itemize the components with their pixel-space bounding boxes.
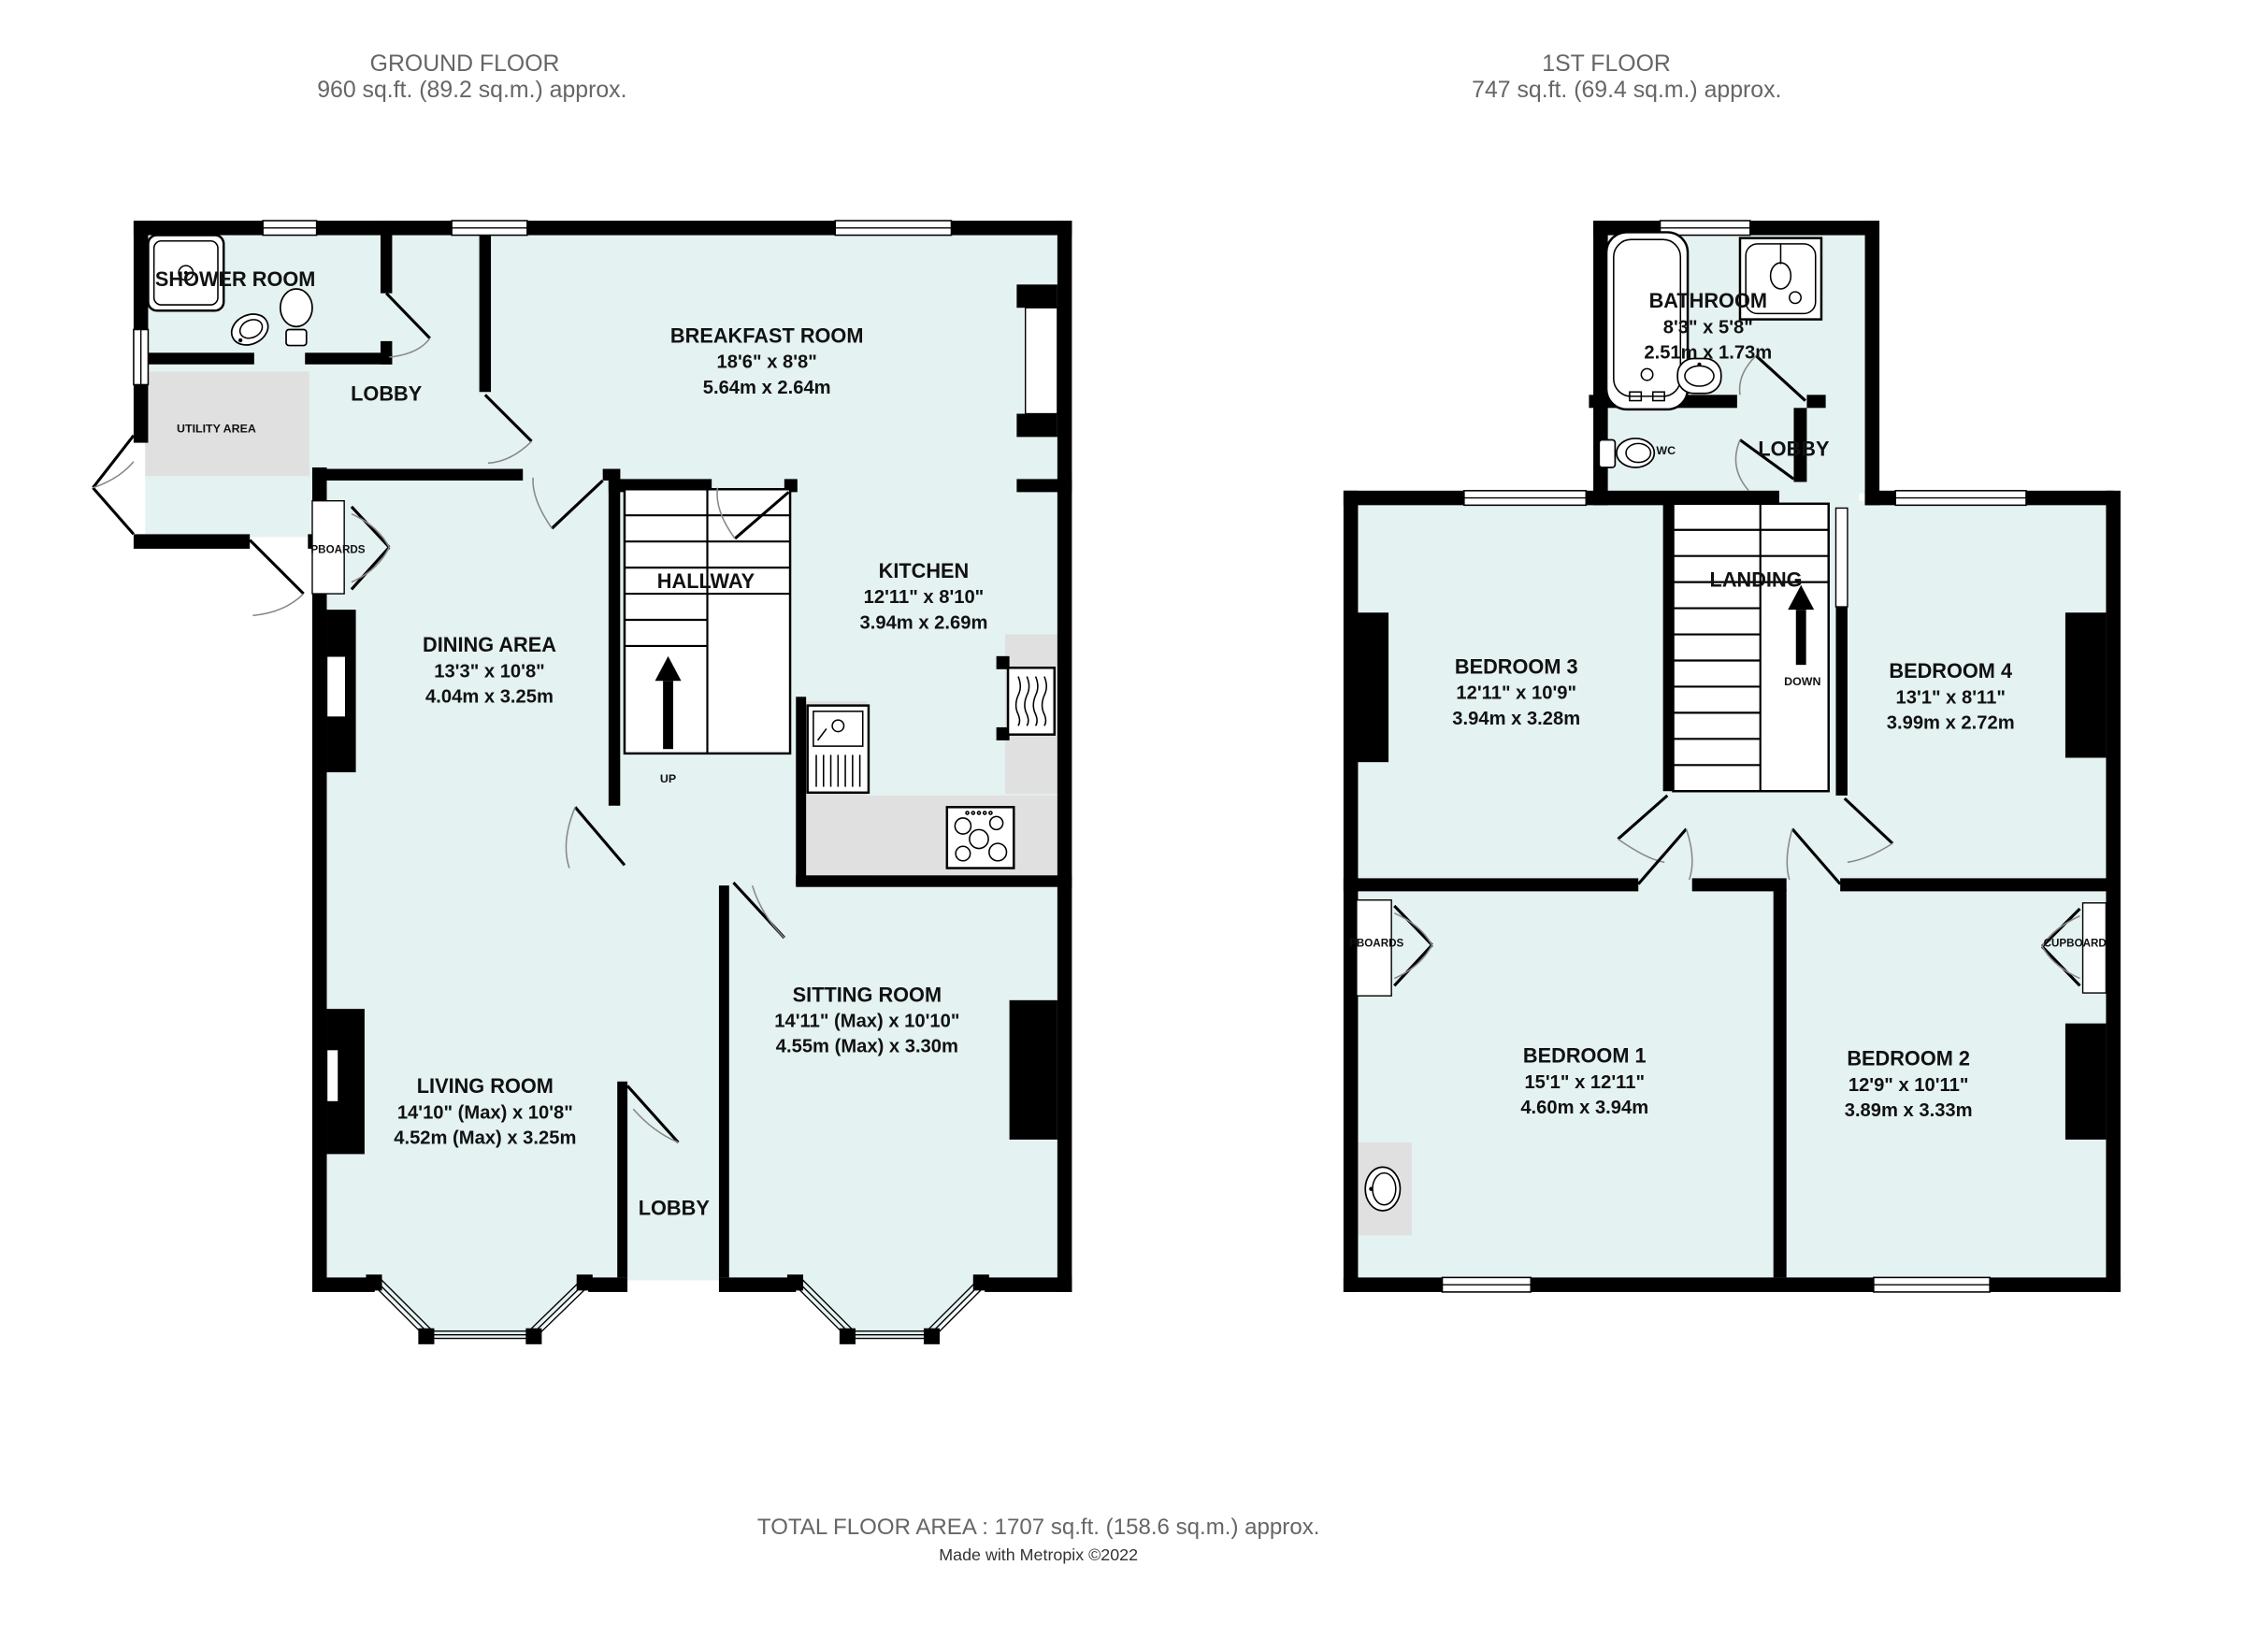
svg-text:12'9" x 10'11": 12'9" x 10'11" <box>1848 1075 1969 1096</box>
svg-text:4.55m (Max) x 3.30m: 4.55m (Max) x 3.30m <box>776 1037 958 1057</box>
svg-text:BEDROOM 2: BEDROOM 2 <box>1847 1047 1970 1070</box>
door <box>250 540 303 594</box>
svg-text:4.52m (Max) x 3.25m: 4.52m (Max) x 3.25m <box>394 1128 576 1149</box>
utility-area-label: UTILITY AREA <box>177 423 256 436</box>
ground-floor-area: 960 sq.ft. (89.2 sq.m.) approx. <box>317 78 626 103</box>
svg-text:3.94m x 3.28m: 3.94m x 3.28m <box>1452 709 1580 729</box>
cupboards-label: PBOARDS <box>310 544 365 556</box>
svg-text:12'11" x 8'10": 12'11" x 8'10" <box>864 587 985 608</box>
landing-label: LANDING <box>1710 567 1803 591</box>
svg-text:4.60m x 3.94m: 4.60m x 3.94m <box>1520 1098 1648 1118</box>
bedroom2-label: BEDROOM 2 12'9" x 10'11" 3.89m x 3.33m <box>1845 1047 1973 1121</box>
stairwell-screen <box>1835 508 1847 607</box>
toilet <box>1599 438 1654 467</box>
door <box>93 488 133 535</box>
wc-label: WC <box>1656 444 1676 457</box>
sitting-chimney-breast <box>1010 1000 1057 1140</box>
svg-text:3.94m x 2.69m: 3.94m x 2.69m <box>860 612 988 633</box>
bedroom2-chimney-breast <box>2065 1024 2106 1140</box>
svg-text:BEDROOM 1: BEDROOM 1 <box>1523 1044 1647 1068</box>
door <box>93 436 133 488</box>
svg-text:12'11" x 10'9": 12'11" x 10'9" <box>1456 683 1576 704</box>
living-room-bay-floor <box>375 1281 588 1339</box>
hallway-label: HALLWAY <box>657 569 755 593</box>
svg-text:2.51m x 1.73m: 2.51m x 1.73m <box>1644 343 1772 364</box>
bedroom3-label: BEDROOM 3 12'11" x 10'9" 3.94m x 3.28m <box>1452 654 1580 728</box>
ground-floor-staircase <box>625 489 790 754</box>
bedroom3-chimney-breast <box>1357 612 1388 762</box>
svg-text:KITCHEN: KITCHEN <box>879 559 970 582</box>
svg-text:BREAKFAST ROOM: BREAKFAST ROOM <box>670 323 864 347</box>
kitchen-sink <box>808 706 869 793</box>
first-floor-staircase <box>1674 504 1829 791</box>
svg-text:DINING AREA: DINING AREA <box>423 633 556 656</box>
lobby-top-label: LOBBY <box>351 382 423 406</box>
lobby-bottom-label: LOBBY <box>639 1197 711 1220</box>
svg-text:13'1" x 8'11": 13'1" x 8'11" <box>1896 687 2006 708</box>
first-floor-area: 747 sq.ft. (69.4 sq.m.) approx. <box>1472 78 1781 103</box>
bedroom4-label: BEDROOM 4 13'1" x 8'11" 3.99m x 2.72m <box>1887 659 2015 733</box>
svg-text:BATHROOM: BATHROOM <box>1649 289 1767 312</box>
ground-floor-plan: SHOWER ROOM LOBBY UTILITY AREA PBOARDS B… <box>93 221 1072 1344</box>
bathroom-label: BATHROOM 8'3" x 5'8" 2.51m x 1.73m <box>1644 289 1772 363</box>
bedroom1-label: BEDROOM 1 15'1" x 12'11" 4.60m x 3.94m <box>1520 1044 1648 1118</box>
metropix-credit: Made with Metropix ©2022 <box>939 1545 1138 1564</box>
svg-text:15'1" x 12'11": 15'1" x 12'11" <box>1524 1072 1645 1093</box>
svg-text:BEDROOM 3: BEDROOM 3 <box>1455 654 1578 678</box>
svg-text:5.64m x 2.64m: 5.64m x 2.64m <box>703 378 831 398</box>
total-floor-area: TOTAL FLOOR AREA : 1707 sq.ft. (158.6 sq… <box>757 1515 1320 1540</box>
svg-text:8'3" x 5'8": 8'3" x 5'8" <box>1663 317 1753 338</box>
cupboard-right-label: CUPBOARD <box>2044 937 2107 949</box>
sitting-room-bay-floor <box>796 1281 985 1339</box>
svg-text:4.04m x 3.25m: 4.04m x 3.25m <box>425 687 554 708</box>
floorplan-canvas: GROUND FLOOR 960 sq.ft. (89.2 sq.m.) app… <box>0 0 2244 1652</box>
svg-text:BEDROOM 4: BEDROOM 4 <box>1889 659 2012 682</box>
first-floor-lobby-label: LOBBY <box>1758 438 1830 461</box>
svg-text:3.89m x 3.33m: 3.89m x 3.33m <box>1845 1100 1973 1121</box>
floorplan-page: GROUND FLOOR 960 sq.ft. (89.2 sq.m.) app… <box>0 0 2244 1652</box>
up-label: UP <box>660 772 676 785</box>
bedroom4-chimney-breast <box>2065 612 2106 757</box>
kitchen-label: KITCHEN 12'11" x 8'10" 3.94m x 2.69m <box>860 559 988 633</box>
living-room-label: LIVING ROOM 14'10" (Max) x 10'8" 4.52m (… <box>394 1074 576 1148</box>
shower-room-label: SHOWER ROOM <box>155 267 316 291</box>
first-floor-plan: BATHROOM 8'3" x 5'8" 2.51m x 1.73m WC LO… <box>1344 221 2121 1292</box>
sink <box>1365 1167 1400 1211</box>
breakfast-wall-recess <box>1026 308 1057 413</box>
hob <box>947 807 1014 868</box>
dining-area-label: DINING AREA 13'3" x 10'8" 4.04m x 3.25m <box>423 633 556 707</box>
down-label: DOWN <box>1784 675 1820 688</box>
cupboards-left-label: PBOARDS <box>1349 937 1403 949</box>
svg-text:SITTING ROOM: SITTING ROOM <box>793 983 942 1006</box>
svg-text:3.99m x 2.72m: 3.99m x 2.72m <box>1887 712 2015 733</box>
svg-text:18'6" x 8'8": 18'6" x 8'8" <box>717 352 817 373</box>
ground-floor-title: GROUND FLOOR <box>370 51 560 77</box>
svg-text:13'3" x 10'8": 13'3" x 10'8" <box>434 661 544 682</box>
svg-text:14'10" (Max) x 10'8": 14'10" (Max) x 10'8" <box>397 1102 573 1123</box>
sitting-room-label: SITTING ROOM 14'11" (Max) x 10'10" 4.55m… <box>774 983 959 1056</box>
first-floor-title: 1ST FLOOR <box>1542 51 1671 77</box>
svg-text:LIVING ROOM: LIVING ROOM <box>417 1074 554 1098</box>
sink <box>1677 359 1721 394</box>
svg-text:14'11" (Max) x 10'10": 14'11" (Max) x 10'10" <box>774 1012 959 1032</box>
